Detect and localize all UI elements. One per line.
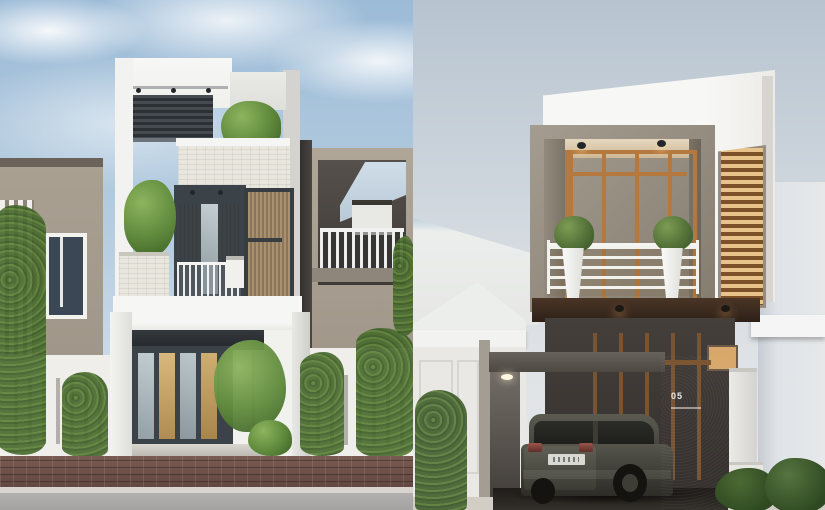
balcony-planter-tree <box>124 180 176 256</box>
louver-screen <box>718 145 766 308</box>
entry-steps <box>128 444 268 456</box>
left-render-panel <box>0 0 413 510</box>
wood-louver-panel <box>244 188 294 306</box>
floor-slab-band <box>113 296 302 334</box>
right-neighbor-railing <box>320 228 404 272</box>
canopy-downlight-1 <box>190 190 195 195</box>
wood-louver-divider <box>248 238 282 242</box>
planter-plant-2 <box>653 216 693 252</box>
right-neighbor-balcony-slab <box>312 268 406 282</box>
planter-plant-1 <box>554 216 594 252</box>
box-downlight-1 <box>577 142 586 149</box>
box-downlight-2 <box>657 140 666 147</box>
roof-downlight-1 <box>136 88 141 93</box>
vine-right-2 <box>356 328 413 458</box>
vine-right-1 <box>300 352 344 456</box>
soffit-downlight-1 <box>615 305 624 312</box>
railing-post-right <box>696 240 699 294</box>
left-neighbor-window <box>45 233 87 319</box>
right-render-panel: 05 <box>413 0 825 510</box>
house-number: 05 <box>671 391 683 401</box>
right-neighbor-roof-band <box>751 315 825 337</box>
car-rear-wheel <box>531 478 555 504</box>
entry-door-pane-2 <box>159 353 175 439</box>
two-house-renders-collage: 05 <box>0 0 825 510</box>
entry-door-pane-3 <box>180 353 196 439</box>
roof-downlight-3 <box>206 88 211 93</box>
entry-tree-foliage <box>214 340 286 432</box>
roof-downlight-2 <box>171 88 176 93</box>
pergola-slats <box>127 95 213 142</box>
car-tail-light-right <box>579 443 593 452</box>
gable-cornice <box>413 330 526 347</box>
vine-left-low <box>62 372 108 458</box>
sidewalk-brick <box>0 456 413 489</box>
glass-wall-transom-rail <box>567 172 687 176</box>
carport-lamp <box>501 374 513 380</box>
hedge-column <box>415 390 467 510</box>
canopy-downlight-2 <box>218 190 223 195</box>
stone-clad-band <box>178 146 290 190</box>
entry-door-pane-1 <box>138 353 154 439</box>
left-neighbor-roof-band <box>0 158 103 167</box>
corner-foliage-2 <box>765 458 825 510</box>
roof-white-slab <box>176 138 290 146</box>
soffit-downlight-2 <box>721 305 730 312</box>
carport-beam <box>489 352 665 372</box>
road <box>0 493 413 510</box>
left-neighbor-window-mullion <box>60 237 63 307</box>
house-number-subtext-line <box>671 407 701 409</box>
vine-left-tall <box>0 205 46 455</box>
railing-post-left <box>547 240 550 294</box>
car-license-plate <box>548 454 585 465</box>
fence-pillar-left <box>110 312 132 460</box>
vine-balcony-edge <box>393 236 413 336</box>
entry-shrub <box>248 420 292 456</box>
car-front-wheel-rim <box>622 474 638 492</box>
car-tail-light-left <box>528 443 542 452</box>
suv-car <box>521 412 673 504</box>
